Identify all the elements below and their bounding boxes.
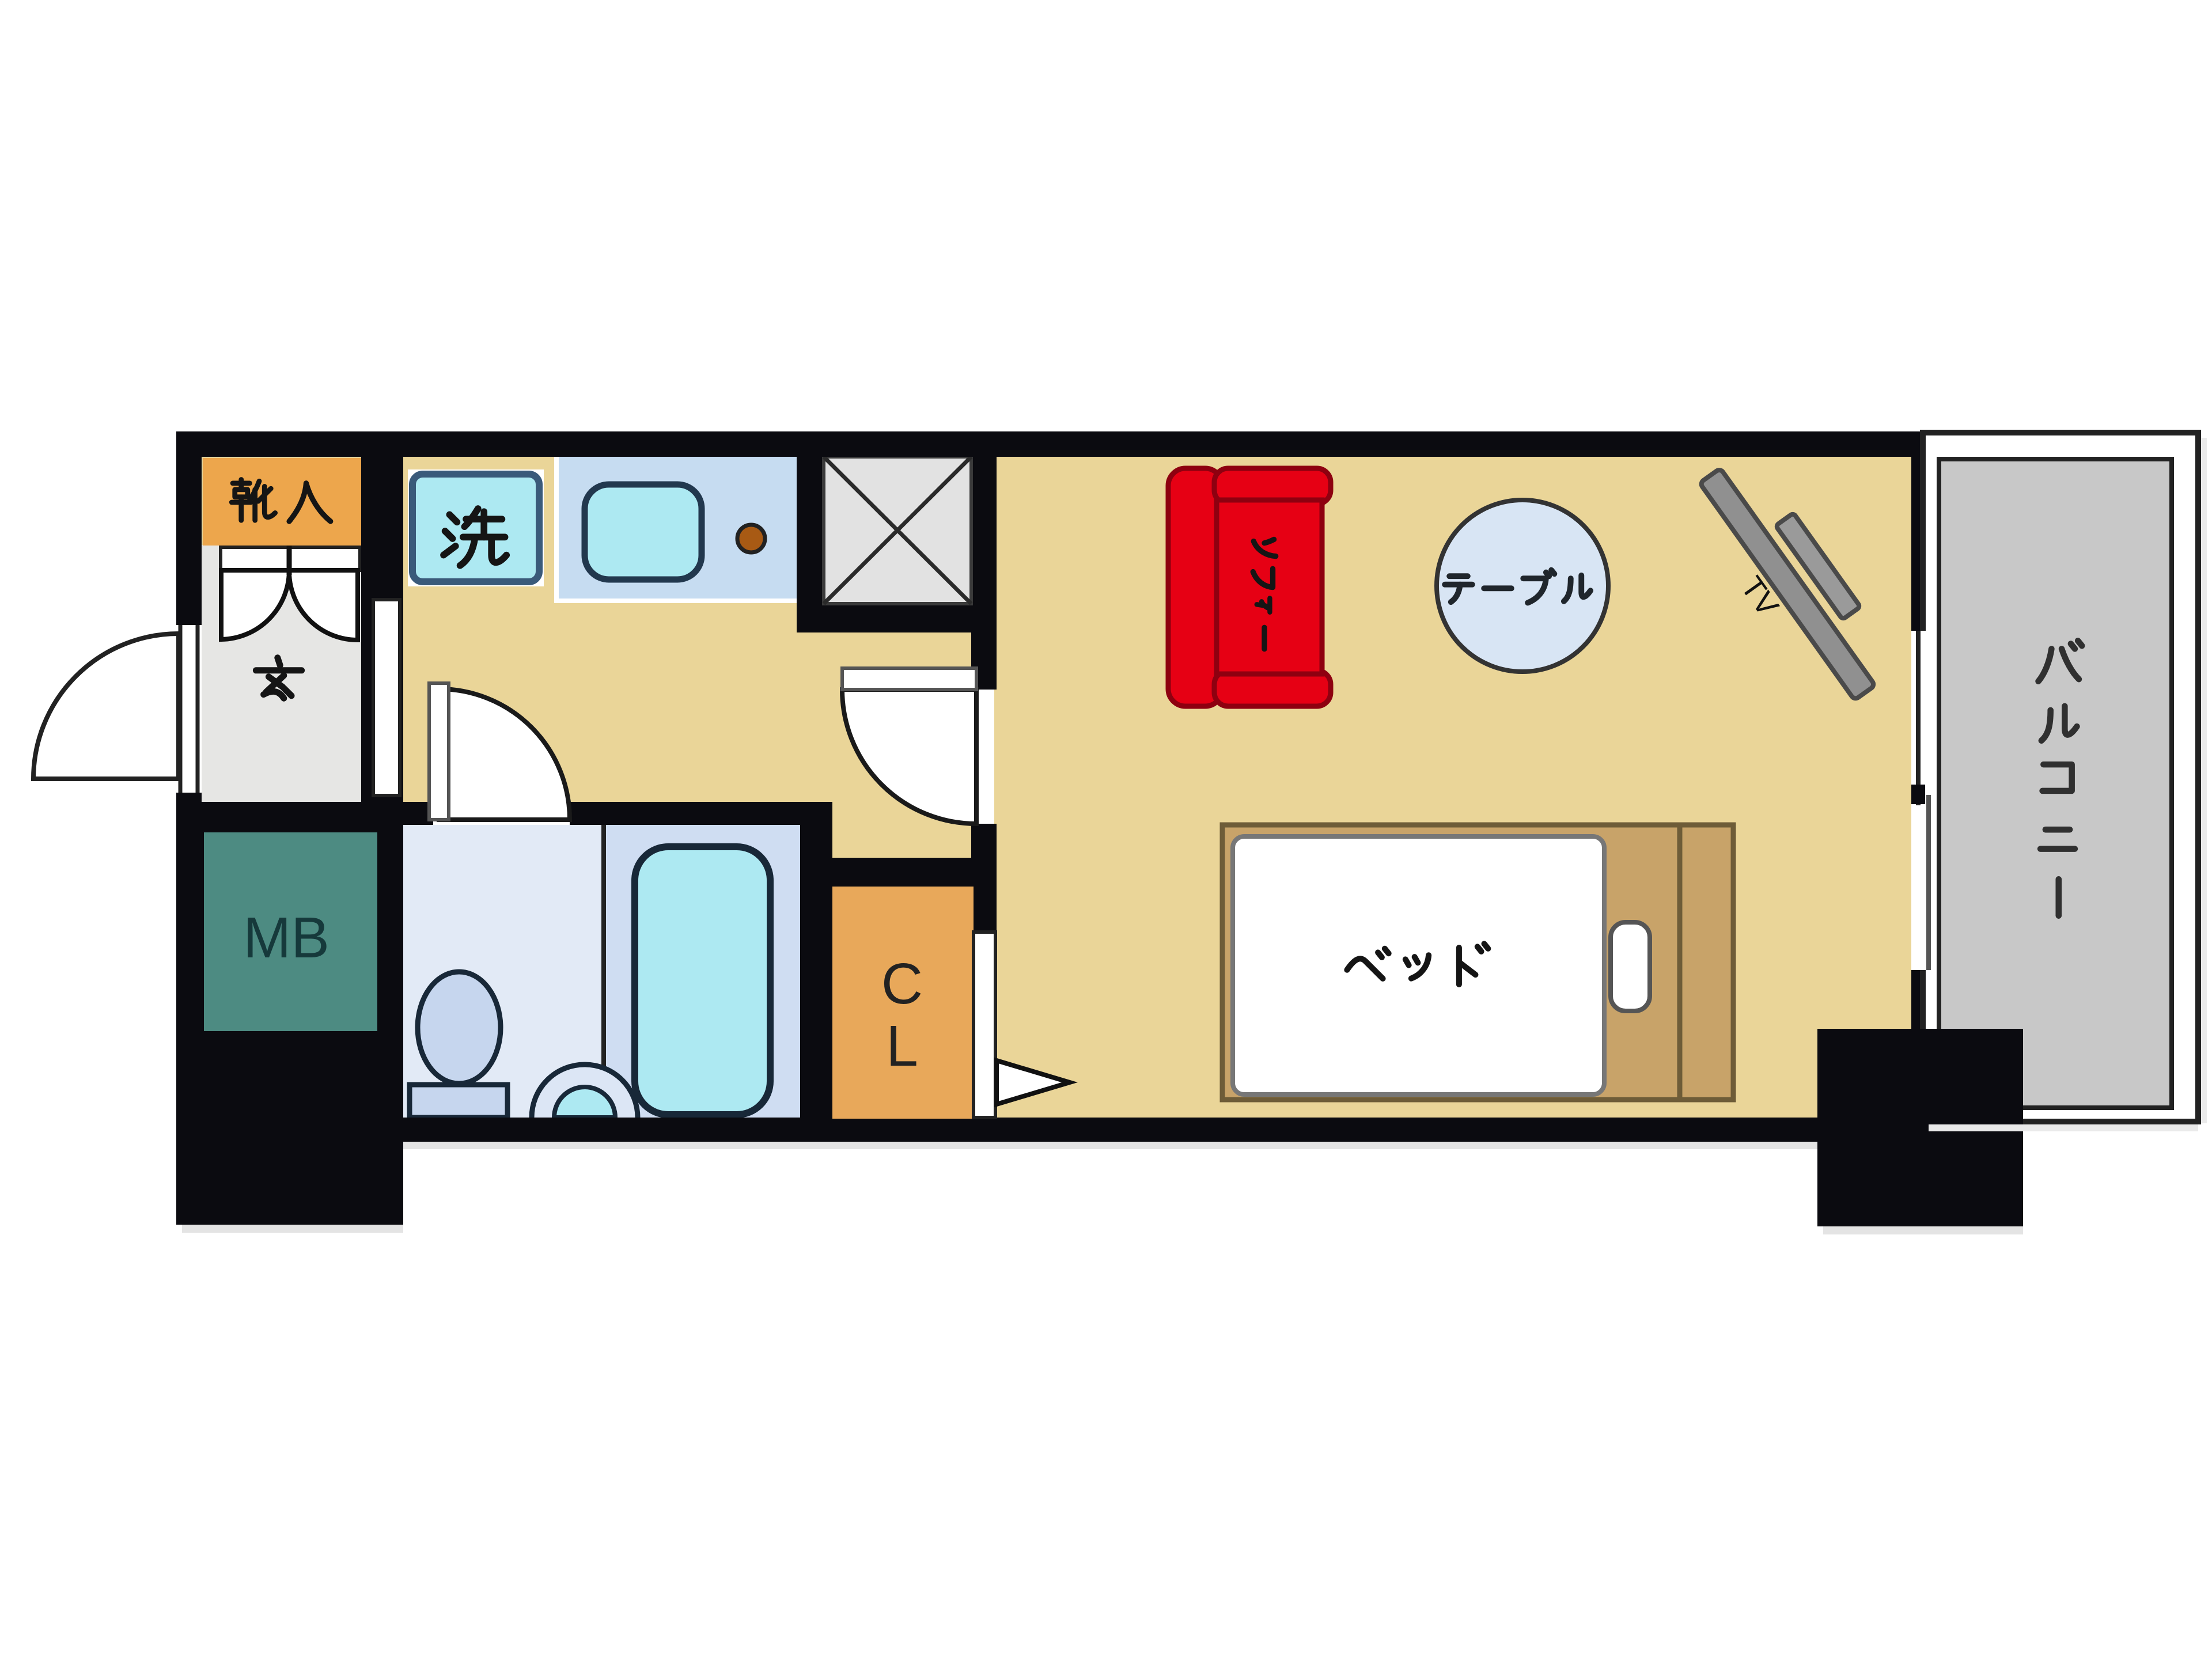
svg-text:MB: MB xyxy=(243,906,329,970)
svg-text:L: L xyxy=(886,1014,918,1078)
svg-text:C: C xyxy=(881,952,923,1016)
